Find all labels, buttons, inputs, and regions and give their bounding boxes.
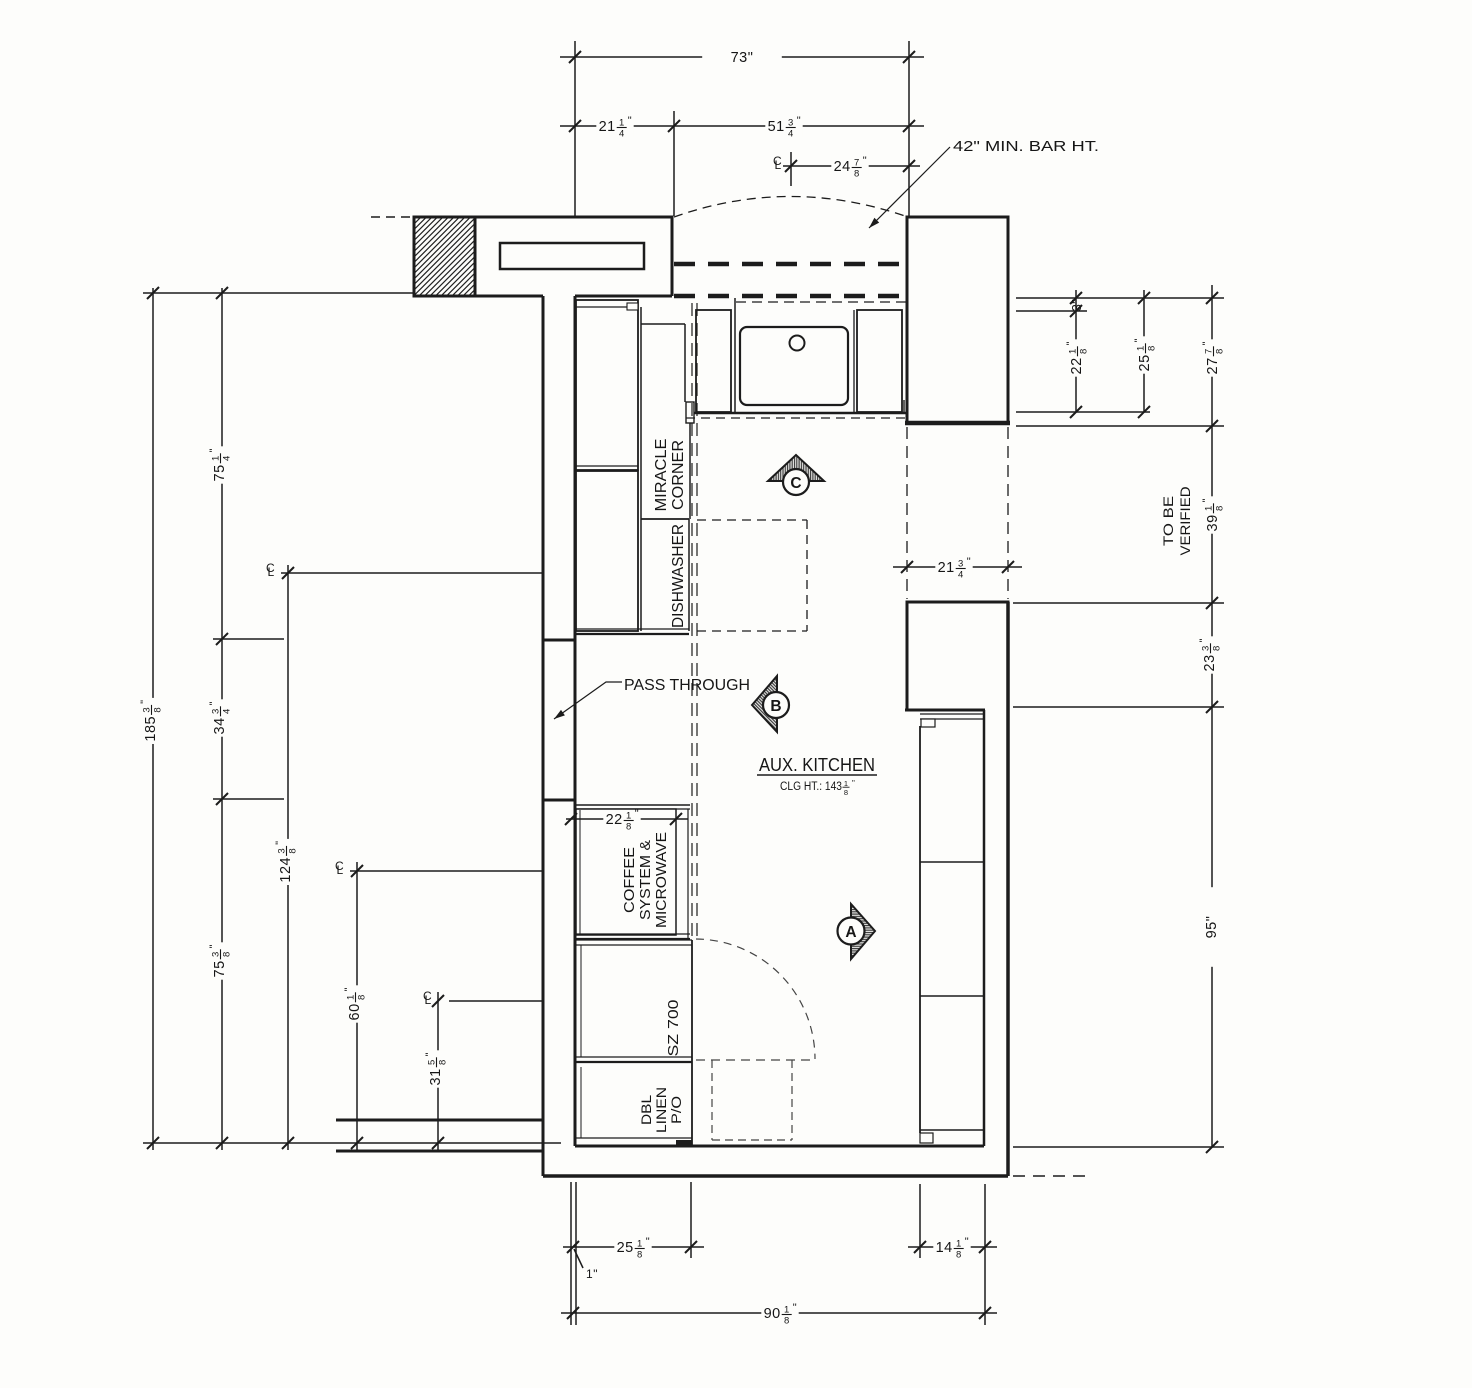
svg-text:": "	[1201, 341, 1213, 345]
svg-text:14: 14	[936, 1240, 953, 1256]
svg-text:23: 23	[1202, 654, 1218, 671]
svg-text:185: 185	[143, 716, 159, 742]
svg-text:MIRACLE: MIRACLE	[653, 439, 670, 512]
svg-text:1: 1	[619, 118, 624, 129]
svg-text:": "	[965, 1236, 969, 1248]
svg-text:73": 73"	[731, 50, 754, 66]
svg-text:39: 39	[1205, 514, 1221, 531]
svg-text:8: 8	[637, 1250, 642, 1261]
svg-text:1: 1	[1136, 346, 1147, 351]
svg-text:": "	[863, 155, 867, 167]
svg-text:1: 1	[211, 456, 222, 461]
svg-text:8: 8	[1215, 506, 1226, 511]
svg-text:": "	[208, 448, 220, 452]
svg-text:1: 1	[844, 779, 848, 788]
svg-text:": "	[208, 944, 220, 948]
svg-text:4: 4	[958, 570, 963, 581]
svg-text:24: 24	[834, 159, 851, 175]
svg-text:8: 8	[844, 788, 848, 797]
svg-text:8: 8	[357, 995, 368, 1000]
svg-text:8: 8	[956, 1250, 961, 1261]
svg-text:1: 1	[1068, 349, 1079, 354]
svg-text:4: 4	[222, 709, 233, 714]
svg-text:25: 25	[1137, 354, 1153, 371]
svg-text:3": 3"	[1069, 299, 1084, 312]
svg-text:": "	[1065, 341, 1077, 345]
svg-text:3: 3	[211, 952, 222, 957]
svg-text:22: 22	[606, 812, 623, 828]
svg-text:": "	[208, 701, 220, 705]
svg-text:": "	[793, 1302, 797, 1314]
svg-text:3: 3	[958, 559, 963, 570]
svg-text:": "	[1201, 498, 1213, 502]
svg-text:DISHWASHER: DISHWASHER	[670, 524, 687, 628]
svg-text:3: 3	[142, 707, 153, 712]
svg-text:SZ 700: SZ 700	[665, 1000, 682, 1057]
svg-text:": "	[1198, 638, 1210, 642]
svg-text:60: 60	[347, 1003, 363, 1020]
svg-text:8: 8	[784, 1316, 789, 1327]
svg-text:": "	[424, 1052, 436, 1056]
svg-text:": "	[797, 115, 801, 127]
svg-text:8: 8	[1212, 646, 1223, 651]
svg-text:COFFEE: COFFEE	[622, 847, 638, 913]
svg-text:8: 8	[854, 169, 859, 180]
svg-text:7: 7	[1204, 349, 1215, 354]
svg-text:22: 22	[1069, 357, 1085, 374]
svg-text:4: 4	[619, 129, 624, 140]
svg-text:": "	[343, 987, 355, 991]
svg-text:": "	[967, 556, 971, 568]
svg-text:8: 8	[1079, 349, 1090, 354]
svg-text:A: A	[845, 924, 856, 941]
svg-text:27: 27	[1205, 357, 1221, 374]
svg-text:L: L	[775, 158, 782, 172]
svg-text:8: 8	[1147, 346, 1158, 351]
svg-text:1: 1	[346, 995, 357, 1000]
svg-text:8: 8	[438, 1060, 449, 1065]
svg-text:B: B	[770, 698, 781, 715]
svg-text:P/O: P/O	[669, 1096, 684, 1124]
svg-text:8: 8	[626, 822, 631, 833]
svg-text:": "	[635, 808, 639, 820]
svg-text:CLG HT.: 143: CLG HT.: 143	[780, 781, 842, 793]
svg-text:CORNER: CORNER	[670, 440, 687, 510]
svg-text:C: C	[790, 475, 801, 492]
svg-text:42" MIN. BAR HT.: 42" MIN. BAR HT.	[953, 139, 1099, 155]
svg-text:L: L	[268, 565, 275, 579]
svg-text:8: 8	[222, 952, 233, 957]
svg-text:MICROWAVE: MICROWAVE	[654, 832, 670, 928]
svg-text:51: 51	[768, 119, 785, 135]
svg-text:DBL: DBL	[639, 1094, 654, 1125]
svg-text:4: 4	[788, 129, 793, 140]
svg-text:3: 3	[1201, 646, 1212, 651]
svg-text:": "	[139, 700, 151, 704]
svg-text:PASS THROUGH: PASS THROUGH	[624, 677, 750, 694]
svg-text:8: 8	[153, 707, 164, 712]
svg-text:3: 3	[211, 709, 222, 714]
svg-text:25: 25	[617, 1240, 634, 1256]
svg-text:L: L	[337, 863, 344, 877]
svg-text:7: 7	[854, 158, 859, 169]
svg-text:1: 1	[626, 811, 631, 822]
svg-text:8: 8	[288, 848, 299, 853]
svg-text:75: 75	[212, 960, 228, 977]
svg-text:SYSTEM &: SYSTEM &	[638, 840, 654, 920]
svg-text:AUX. KITCHEN: AUX. KITCHEN	[759, 755, 875, 775]
svg-text:124: 124	[278, 857, 294, 883]
svg-text:4: 4	[222, 456, 233, 461]
svg-text:": "	[852, 779, 855, 788]
svg-text:": "	[628, 115, 632, 127]
svg-text:1: 1	[784, 1305, 789, 1316]
svg-text:1: 1	[956, 1239, 961, 1250]
svg-text:1": 1"	[586, 1267, 598, 1281]
svg-text:3: 3	[277, 848, 288, 853]
svg-text:5: 5	[427, 1060, 438, 1065]
svg-text:": "	[274, 841, 286, 845]
svg-text:8: 8	[1215, 349, 1226, 354]
svg-text:1: 1	[637, 1239, 642, 1250]
svg-text:1: 1	[1204, 506, 1215, 511]
svg-text:": "	[1133, 338, 1145, 342]
svg-text:21: 21	[938, 560, 955, 576]
svg-text:LINEN: LINEN	[654, 1087, 669, 1133]
svg-text:TO BE: TO BE	[1161, 496, 1176, 546]
svg-text:31: 31	[428, 1068, 444, 1085]
svg-text:L: L	[425, 993, 432, 1007]
svg-text:21: 21	[599, 119, 616, 135]
svg-text:90: 90	[764, 1306, 781, 1322]
svg-text:34: 34	[212, 717, 228, 734]
svg-text:75: 75	[212, 464, 228, 481]
svg-text:VERIFIED: VERIFIED	[1178, 486, 1193, 555]
svg-text:95": 95"	[1204, 916, 1220, 939]
svg-text:": "	[646, 1236, 650, 1248]
svg-text:3: 3	[788, 118, 793, 129]
